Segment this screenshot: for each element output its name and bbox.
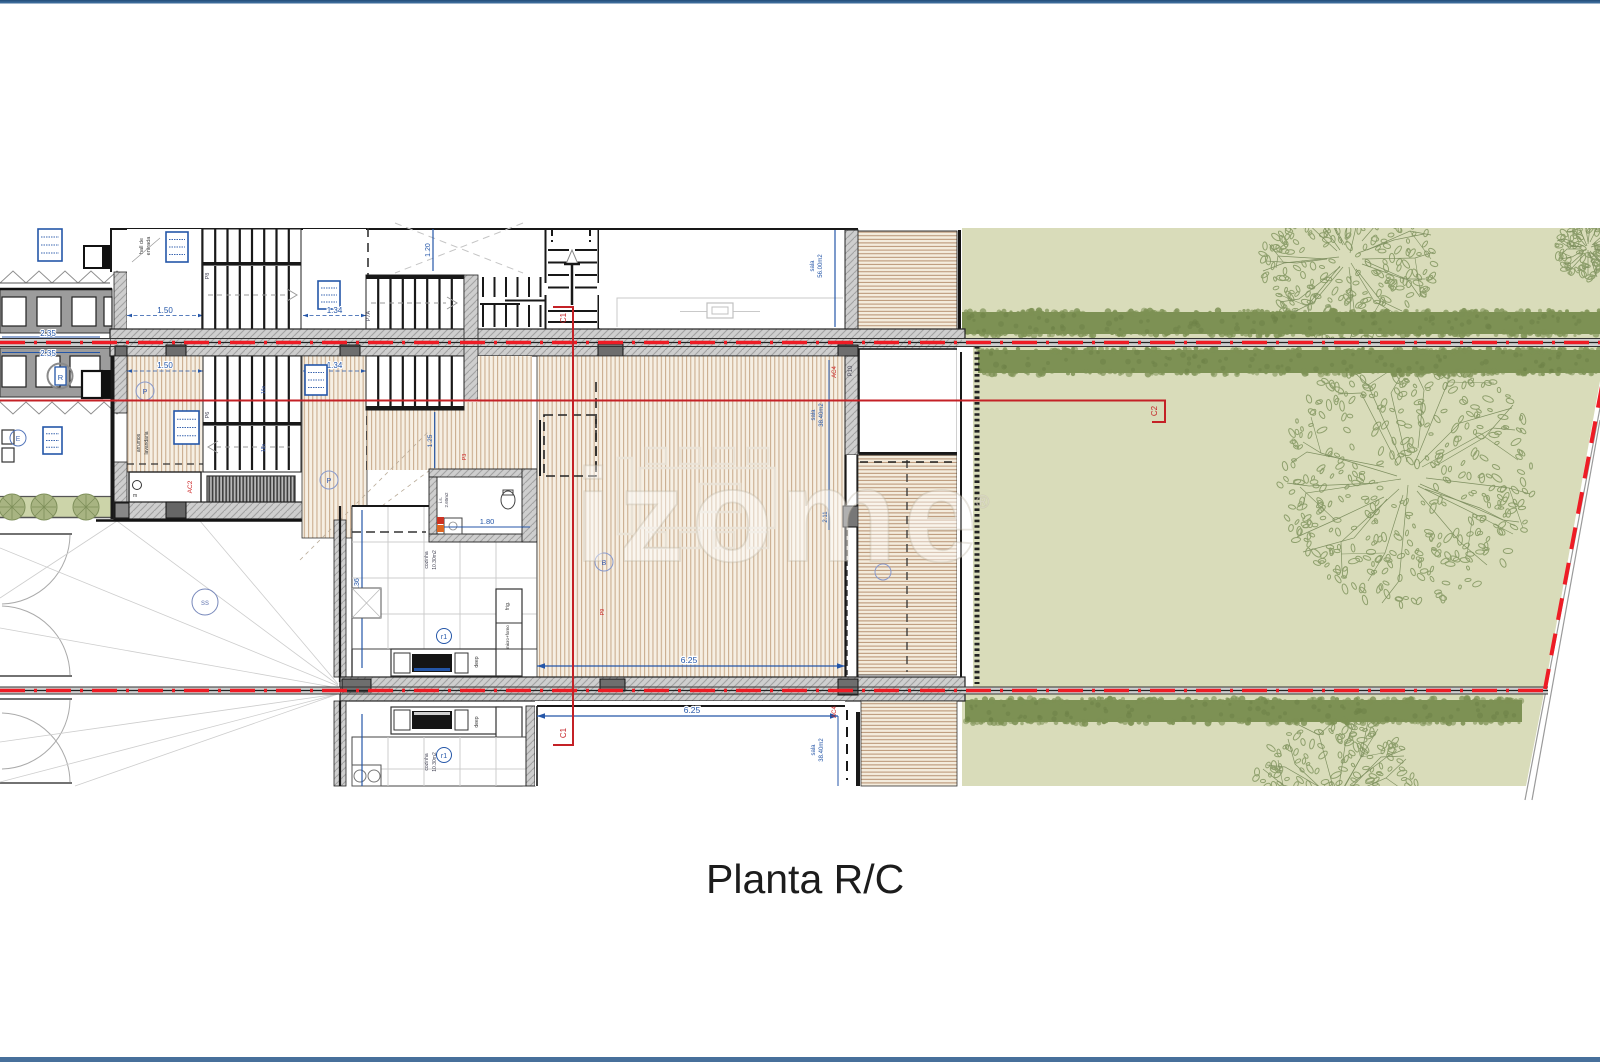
svg-text:2.60m2: 2.60m2 [444,492,449,508]
svg-text:1.20: 1.20 [425,243,432,257]
svg-text:1.50: 1.50 [157,361,173,370]
svg-text:deep: deep [474,656,480,667]
svg-text:micro+forno: micro+forno [505,625,510,649]
svg-text:AC4: AC4 [832,366,838,378]
svg-text:2.35: 2.35 [40,349,56,358]
svg-text:C1: C1 [559,727,568,738]
svg-text:lavandaria: lavandaria [144,431,150,454]
svg-text:10.30m2: 10.30m2 [432,752,438,772]
svg-text:r1: r1 [441,634,447,641]
svg-text:ss: ss [201,598,209,607]
svg-text:1.50: 1.50 [157,306,173,315]
svg-text:R: R [58,373,64,382]
svg-text:P7A: P7A [366,310,372,321]
svg-text:Planta R/C: Planta R/C [706,856,904,902]
svg-text:P9: P9 [600,609,606,616]
svg-text:AC2: AC2 [187,480,194,493]
svg-text:m: m [133,493,137,499]
svg-text:18x: 18x [261,443,267,452]
svg-text:i.s.: i.s. [438,497,443,503]
svg-text:6.25: 6.25 [681,655,698,665]
svg-text:56.00m2: 56.00m2 [818,254,824,278]
svg-text:1.25: 1.25 [427,434,434,447]
svg-text:1.34: 1.34 [327,306,343,315]
svg-text:P10: P10 [848,365,854,376]
svg-text:10.30m2: 10.30m2 [432,550,438,570]
svg-text:C1: C1 [559,312,568,323]
svg-text:r1: r1 [441,753,447,760]
svg-text:P8: P8 [205,273,211,280]
svg-text:P: P [143,389,148,396]
svg-text:sala: sala [811,409,817,421]
svg-text:E: E [16,436,21,443]
svg-text:6.25: 6.25 [684,705,701,715]
svg-text:cozinha: cozinha [424,753,430,770]
svg-text:38.40m2: 38.40m2 [819,403,825,427]
svg-text:2.35: 2.35 [40,329,56,338]
svg-text:P: P [327,478,332,485]
svg-text:sala: sala [810,260,816,272]
svg-text:C2: C2 [1150,405,1159,416]
svg-text:deep: deep [474,716,480,727]
svg-text:cozinha: cozinha [424,551,430,568]
svg-text:®: ® [976,492,989,512]
svg-text:1.34: 1.34 [327,361,343,370]
svg-text:1.80: 1.80 [480,517,495,526]
svg-text:frig.: frig. [505,602,511,610]
svg-text:AC4: AC4 [832,706,838,718]
svg-text:38.40m2: 38.40m2 [819,738,825,762]
svg-text:izome: izome [575,442,984,589]
svg-text:16x: 16x [261,385,267,394]
svg-text:P3: P3 [462,454,468,461]
svg-text:sala: sala [811,744,817,756]
svg-text:P6: P6 [205,412,211,419]
svg-text:arrumos: arrumos [136,433,142,452]
